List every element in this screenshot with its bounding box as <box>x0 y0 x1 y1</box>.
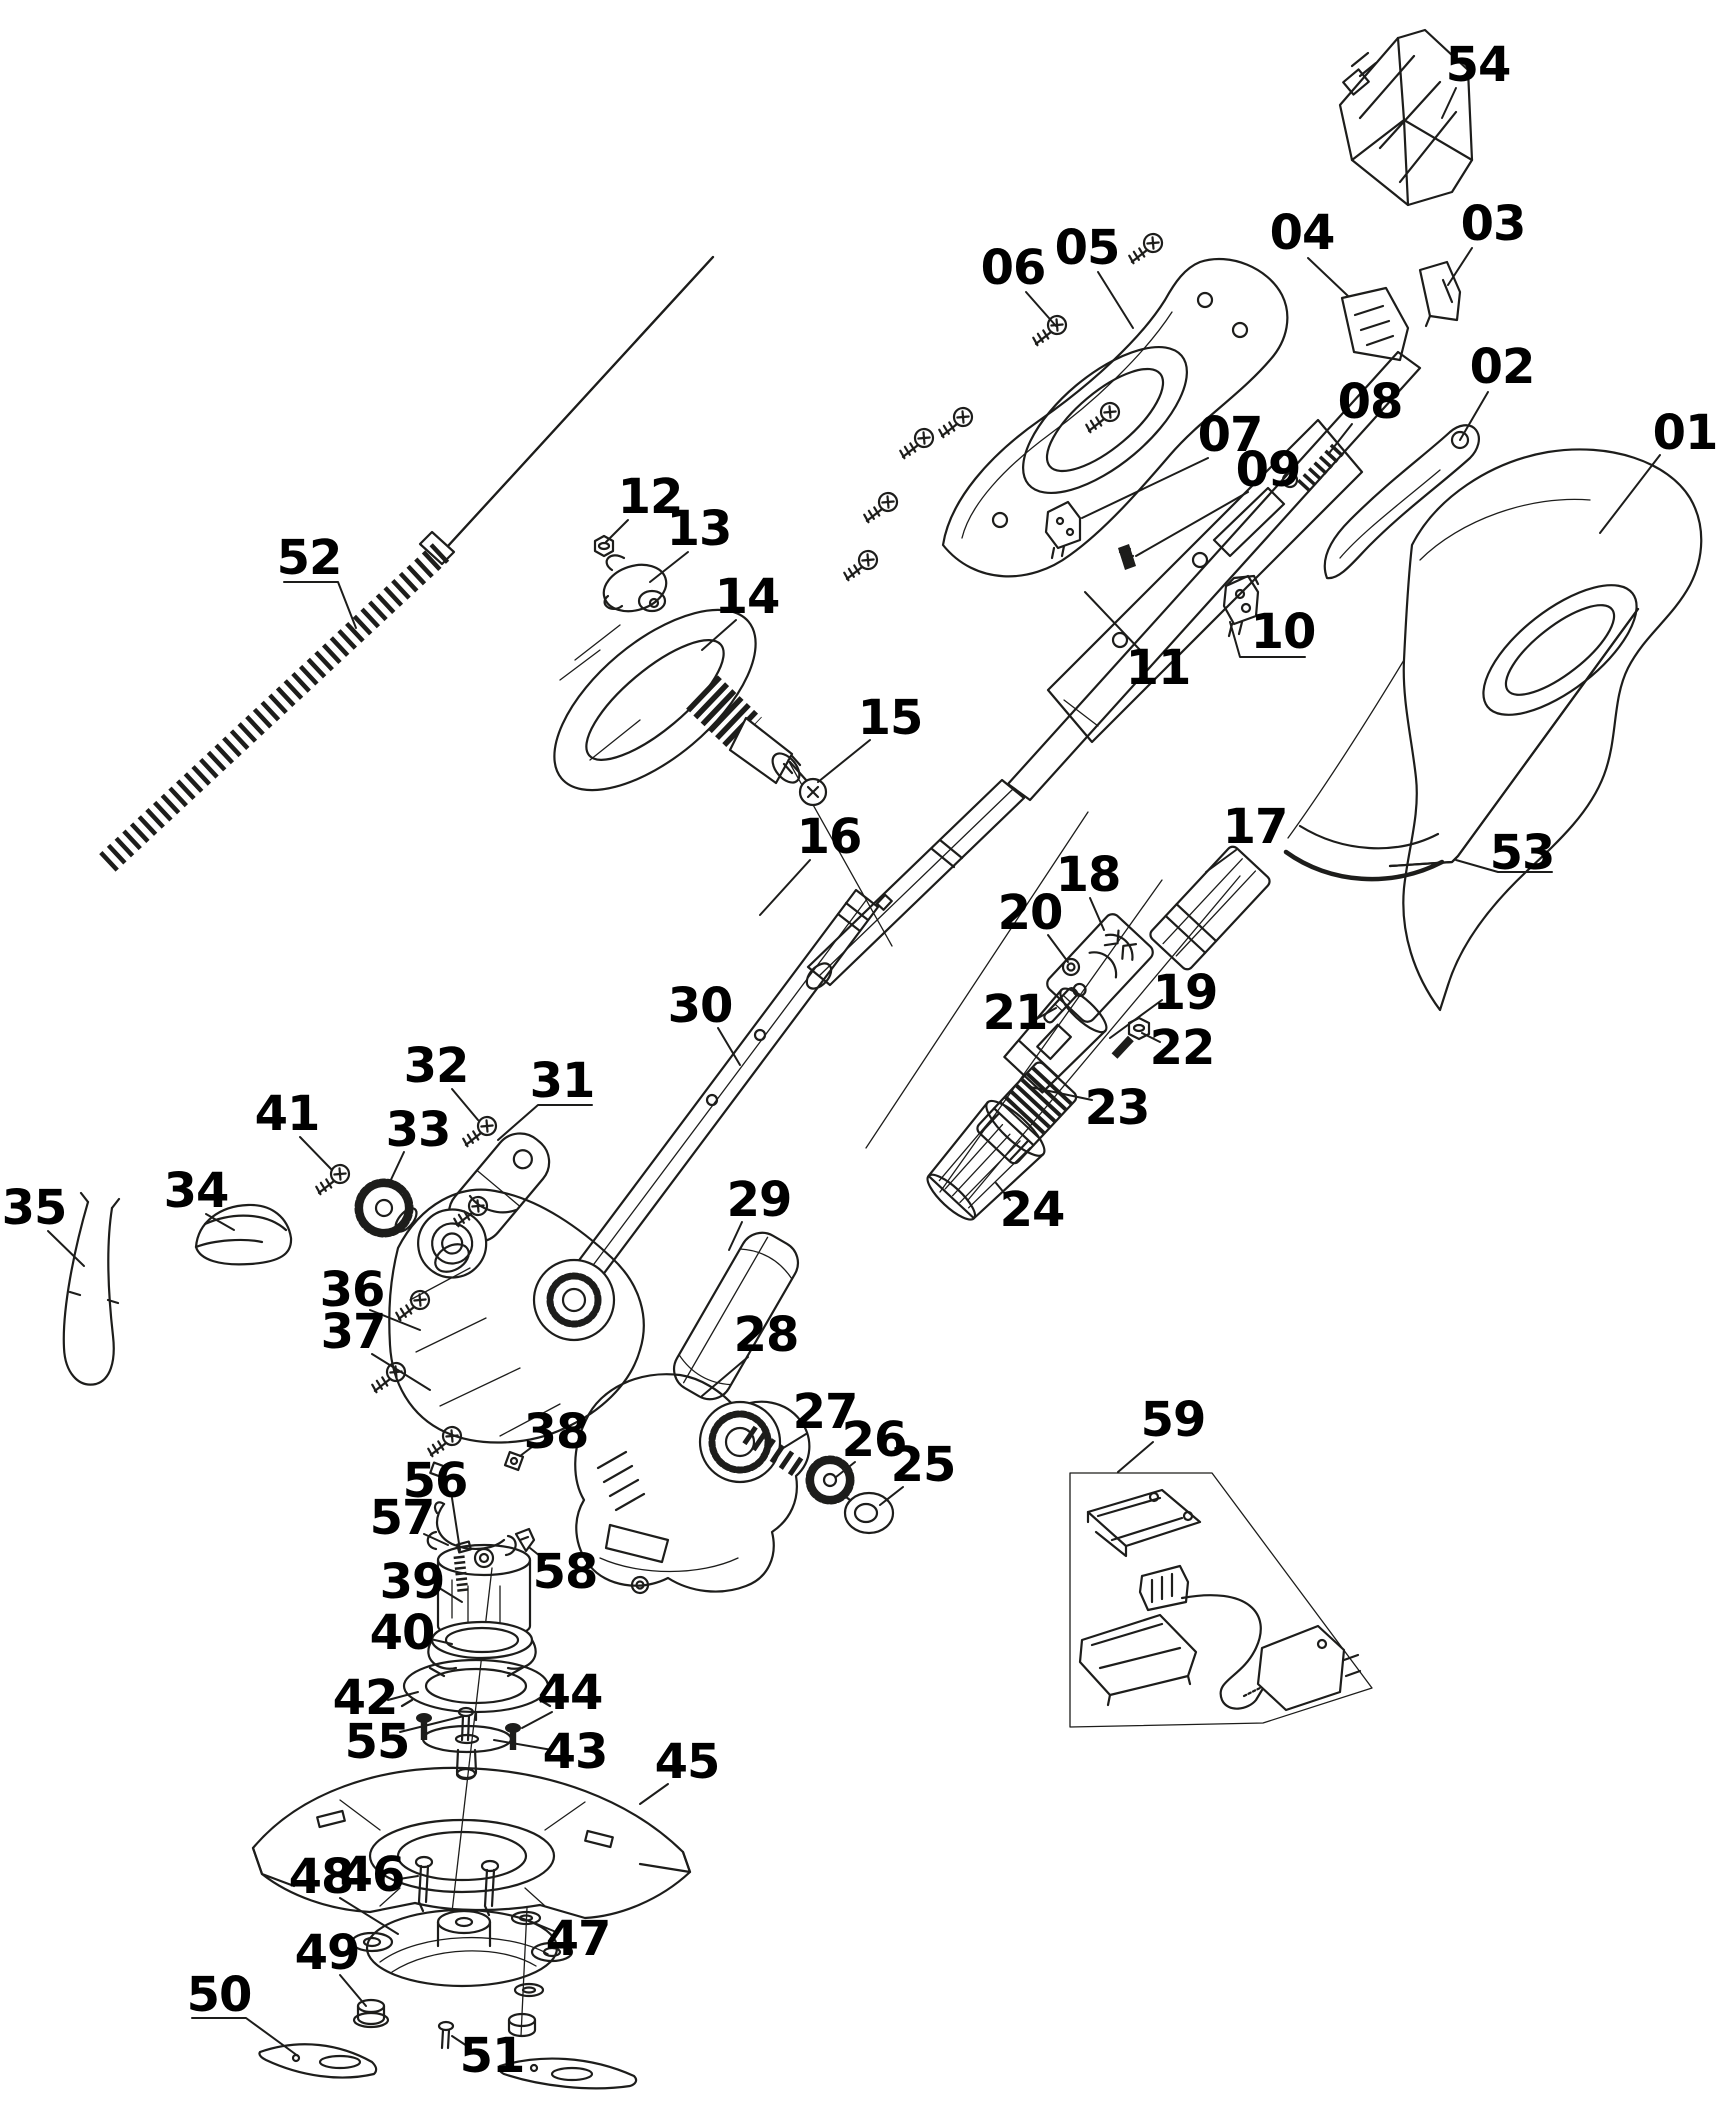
part-label-59: 59 <box>1141 1392 1206 1448</box>
part-09-spring-pin <box>1118 544 1136 570</box>
part-label-44: 44 <box>538 1665 603 1721</box>
part-58-clip <box>516 1529 534 1551</box>
part-label-14: 14 <box>715 569 780 625</box>
part-label-17: 17 <box>1223 799 1288 855</box>
part-label-41: 41 <box>255 1086 320 1142</box>
part-label-08: 08 <box>1338 374 1403 430</box>
charger-cable <box>1182 1595 1262 1708</box>
part-label-28: 28 <box>734 1307 799 1363</box>
part-label-15: 15 <box>858 690 923 746</box>
part-label-19: 19 <box>1153 965 1218 1021</box>
leader-line-15 <box>818 740 870 782</box>
battery-mount-top <box>1088 1490 1200 1556</box>
part-label-31: 31 <box>530 1053 595 1109</box>
part-label-18: 18 <box>1056 847 1121 903</box>
connector-block <box>1140 1566 1188 1610</box>
part-51-screw <box>439 2022 453 2048</box>
part-label-49: 49 <box>295 1925 360 1981</box>
part-label-01: 01 <box>1653 405 1718 461</box>
leader-line-06 <box>1026 292 1056 326</box>
part-label-38: 38 <box>524 1404 589 1460</box>
part-13-clamp <box>598 555 672 618</box>
part-label-05: 05 <box>1055 220 1120 276</box>
labels-layer: 0102030405060708091011121314151617181920… <box>2 37 1718 2084</box>
part-label-53: 53 <box>1490 825 1555 881</box>
part-label-10: 10 <box>1251 604 1316 660</box>
leader-line-16 <box>760 860 810 915</box>
part-label-04: 04 <box>1270 205 1335 261</box>
part-label-09: 09 <box>1236 442 1301 498</box>
part-50-blades <box>259 2044 636 2088</box>
part-label-22: 22 <box>1150 1020 1215 1076</box>
leader-line-05 <box>1098 272 1133 328</box>
part-label-57: 57 <box>370 1490 435 1546</box>
part-label-33: 33 <box>386 1102 451 1158</box>
part-label-11: 11 <box>1126 640 1191 696</box>
part-label-43: 43 <box>543 1724 608 1780</box>
part-label-40: 40 <box>370 1605 435 1661</box>
battery-mount-bottom <box>1080 1615 1196 1705</box>
part-label-16: 16 <box>797 809 862 865</box>
leader-line-52 <box>284 582 356 628</box>
part-label-27: 27 <box>793 1384 858 1440</box>
part-label-21: 21 <box>983 985 1048 1041</box>
part-59-charger-kit <box>1070 1473 1372 1727</box>
part-17-coupler-tube <box>1148 844 1272 972</box>
part-label-02: 02 <box>1470 339 1535 395</box>
part-25-washer-cap <box>842 1493 893 1533</box>
part-03-plate <box>1420 262 1460 326</box>
part-28-motor-housing <box>575 1374 809 1593</box>
part-label-34: 34 <box>164 1163 229 1219</box>
part-04-terminal-block <box>1342 288 1408 360</box>
leader-line-50 <box>192 2018 298 2056</box>
part-label-39: 39 <box>380 1554 445 1610</box>
part-label-37: 37 <box>321 1304 386 1360</box>
part-label-50: 50 <box>187 1967 252 2023</box>
part-44-screw <box>505 1723 521 1750</box>
part-label-52: 52 <box>277 530 342 586</box>
part-label-55: 55 <box>345 1714 410 1770</box>
part-label-23: 23 <box>1085 1080 1150 1136</box>
part-label-06: 06 <box>981 240 1046 296</box>
part-label-58: 58 <box>533 1544 598 1600</box>
part-label-20: 20 <box>998 885 1063 941</box>
part-label-47: 47 <box>546 1911 611 1967</box>
part-23-threaded-sleeve <box>975 1060 1079 1166</box>
part-35-guard-wire <box>64 1193 119 1385</box>
part-01-handle-housing-right <box>1286 449 1701 1010</box>
leader-line-03 <box>1448 248 1472 285</box>
diagram-svg: 0102030405060708091011121314151617181920… <box>0 0 1729 2126</box>
part-30-lower-shaft <box>571 890 878 1291</box>
part-08-spring <box>1303 447 1340 487</box>
part-label-30: 30 <box>668 978 733 1034</box>
part-label-03: 03 <box>1461 196 1526 252</box>
part-20-screw-small <box>1063 959 1079 975</box>
part-label-45: 45 <box>655 1734 720 1790</box>
leader-line-55 <box>400 1716 464 1732</box>
parts-artwork <box>64 30 1701 2088</box>
part-49-nut <box>354 2000 388 2027</box>
part-52-trimmer-line <box>104 257 713 866</box>
leader-line-04 <box>1308 258 1348 296</box>
part-label-29: 29 <box>727 1172 792 1228</box>
exploded-parts-diagram-page: 0102030405060708091011121314151617181920… <box>0 0 1729 2126</box>
part-label-13: 13 <box>667 501 732 557</box>
leader-line-01 <box>1600 455 1660 533</box>
part-label-35: 35 <box>2 1180 67 1236</box>
part-41-screw <box>314 1161 352 1202</box>
part-label-24: 24 <box>1000 1182 1065 1238</box>
part-32-screw <box>461 1113 499 1154</box>
part-07-switch <box>1046 502 1080 558</box>
part-label-51: 51 <box>460 2028 525 2084</box>
part-42-spool-housing <box>402 1660 550 1720</box>
leader-line-02 <box>1460 392 1488 440</box>
part-label-48: 48 <box>289 1849 354 1905</box>
part-label-54: 54 <box>1446 37 1511 93</box>
part-label-32: 32 <box>404 1038 469 1094</box>
leader-line-07 <box>1082 458 1208 518</box>
